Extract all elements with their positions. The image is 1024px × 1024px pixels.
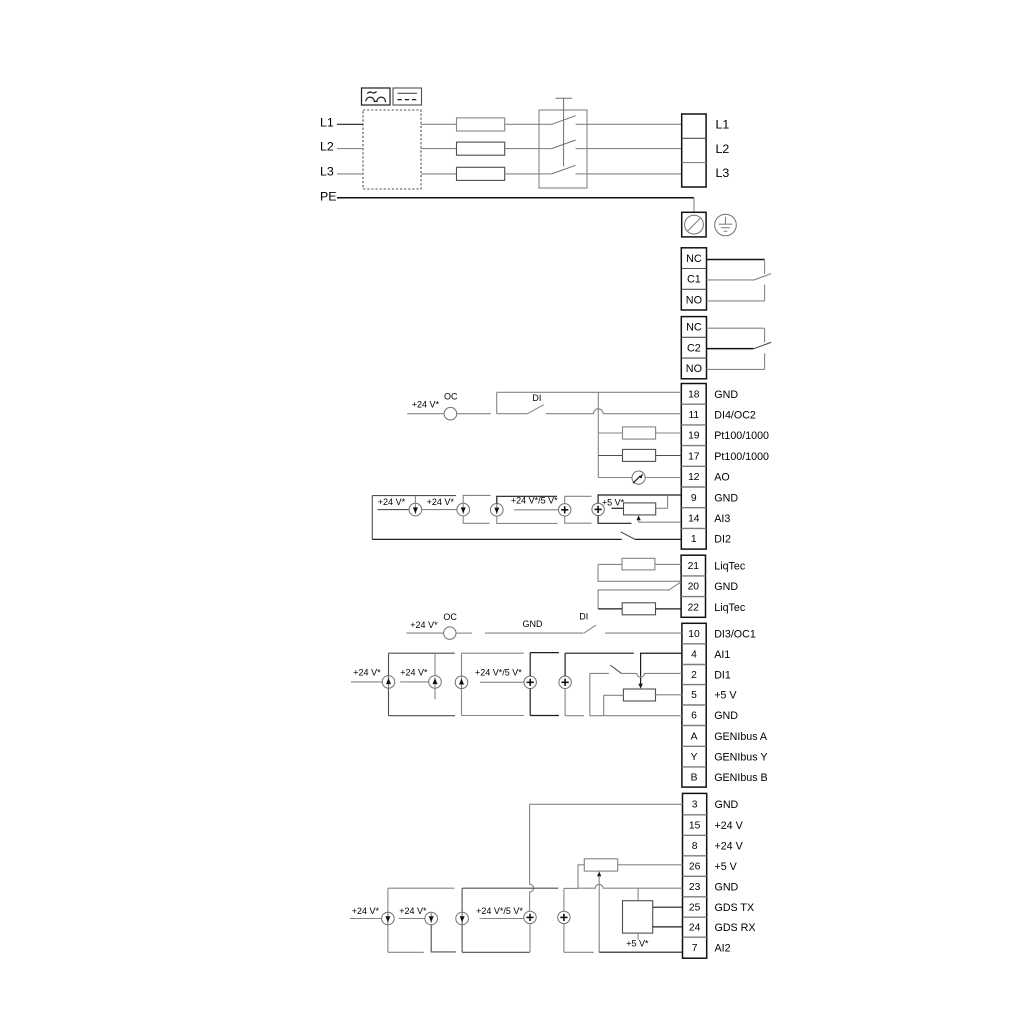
svg-text:DI4/OC2: DI4/OC2 (714, 409, 756, 421)
svg-text:+24 V: +24 V (715, 840, 744, 852)
svg-text:NO: NO (686, 363, 702, 375)
svg-text:L3: L3 (320, 165, 334, 179)
svg-text:OC: OC (443, 612, 457, 622)
svg-text:2: 2 (691, 670, 697, 681)
svg-text:+5 V: +5 V (715, 861, 738, 873)
svg-text:17: 17 (688, 451, 700, 462)
svg-text:+24 V*: +24 V* (352, 906, 380, 916)
svg-text:26: 26 (689, 861, 701, 872)
svg-text:12: 12 (688, 472, 700, 483)
svg-text:+24 V*: +24 V* (399, 906, 427, 916)
svg-text:20: 20 (688, 582, 700, 593)
svg-text:GDS TX: GDS TX (715, 902, 755, 914)
svg-text:7: 7 (692, 943, 698, 954)
svg-text:AI2: AI2 (715, 943, 731, 955)
svg-text:GND: GND (714, 710, 738, 722)
svg-text:GENIbus Y: GENIbus Y (714, 752, 767, 764)
svg-text:+24 V*: +24 V* (378, 497, 406, 507)
svg-text:24: 24 (689, 923, 701, 934)
svg-text:1: 1 (691, 534, 697, 545)
svg-text:OC: OC (444, 392, 458, 402)
svg-text:LiqTec: LiqTec (714, 560, 746, 572)
svg-text:6: 6 (691, 711, 697, 722)
svg-text:GND: GND (715, 881, 739, 893)
svg-text:10: 10 (688, 629, 700, 640)
svg-text:GND: GND (715, 799, 739, 811)
svg-text:C1: C1 (687, 274, 701, 286)
svg-text:+24 V*: +24 V* (353, 667, 381, 677)
svg-text:L3: L3 (716, 166, 730, 180)
svg-text:18: 18 (688, 389, 700, 400)
svg-text:+24 V: +24 V (715, 820, 744, 832)
svg-text:+24 V*/5 V*: +24 V*/5 V* (476, 906, 523, 916)
svg-text:NO: NO (686, 294, 702, 306)
svg-text:+5 V*: +5 V* (626, 939, 649, 949)
svg-text:GND: GND (714, 492, 738, 504)
svg-text:Pt100/1000: Pt100/1000 (714, 451, 769, 463)
svg-text:5: 5 (691, 690, 697, 701)
svg-text:+24 V*/5 V*: +24 V*/5 V* (511, 496, 558, 506)
svg-text:DI: DI (579, 611, 588, 621)
svg-text:B: B (691, 772, 698, 783)
svg-text:LiqTec: LiqTec (714, 602, 746, 614)
svg-text:15: 15 (689, 820, 701, 831)
svg-text:22: 22 (688, 602, 700, 613)
svg-text:4: 4 (691, 650, 697, 661)
svg-text:L2: L2 (716, 142, 730, 156)
svg-text:NC: NC (686, 322, 702, 334)
svg-text:AI1: AI1 (714, 649, 730, 661)
svg-text:GENIbus B: GENIbus B (714, 772, 767, 784)
svg-text:DI: DI (532, 393, 541, 403)
svg-text:NC: NC (686, 253, 702, 265)
svg-text:21: 21 (688, 561, 700, 572)
svg-text:GENIbus A: GENIbus A (714, 731, 768, 743)
svg-text:L1: L1 (716, 118, 730, 132)
svg-text:L1: L1 (320, 115, 334, 129)
svg-text:AI3: AI3 (714, 513, 730, 525)
svg-text:AO: AO (714, 472, 729, 484)
svg-text:L2: L2 (320, 140, 334, 154)
svg-text:GDS RX: GDS RX (715, 922, 756, 934)
svg-text:23: 23 (689, 882, 701, 893)
svg-text:PE: PE (320, 189, 337, 203)
svg-text:11: 11 (688, 410, 699, 421)
svg-text:+5 V*: +5 V* (602, 497, 625, 507)
svg-text:+5 V: +5 V (714, 690, 737, 702)
svg-text:DI3/OC1: DI3/OC1 (714, 628, 756, 640)
svg-text:3: 3 (692, 800, 698, 811)
svg-text:DI2: DI2 (714, 534, 731, 546)
svg-text:8: 8 (692, 841, 698, 852)
svg-text:25: 25 (689, 902, 701, 913)
svg-text:19: 19 (688, 431, 700, 442)
svg-text:GND: GND (714, 581, 738, 593)
svg-text:GND: GND (523, 619, 544, 629)
svg-text:Pt100/1000: Pt100/1000 (714, 430, 769, 442)
svg-text:C2: C2 (687, 342, 701, 354)
svg-text:+24 V*: +24 V* (400, 667, 428, 677)
svg-text:DI1: DI1 (714, 669, 731, 681)
svg-text:+24 V*: +24 V* (410, 620, 438, 630)
svg-text:+24 V*: +24 V* (427, 497, 455, 507)
svg-text:Y: Y (691, 752, 698, 763)
svg-text:GND: GND (714, 389, 738, 401)
svg-text:14: 14 (688, 513, 700, 524)
svg-text:A: A (691, 731, 698, 742)
svg-text:+24 V*: +24 V* (412, 399, 440, 409)
svg-text:9: 9 (691, 493, 697, 504)
svg-text:+24 V*/5 V*: +24 V*/5 V* (475, 667, 522, 677)
